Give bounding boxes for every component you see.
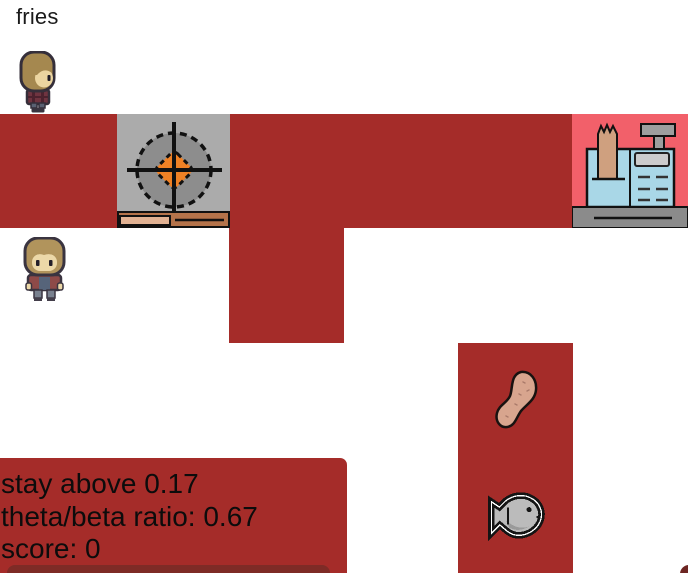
fish-ingredient[interactable] xyxy=(485,488,548,546)
chef-character-icon xyxy=(22,237,67,302)
bottom-right-peek-shape xyxy=(680,565,688,573)
stove-station[interactable] xyxy=(117,114,230,228)
register-station[interactable] xyxy=(572,114,688,228)
potato-icon xyxy=(492,369,542,433)
score-readout: score: 0 xyxy=(1,533,347,566)
counter-block-mid xyxy=(229,228,344,343)
theta-beta-ratio-readout: theta/beta ratio: 0.67 xyxy=(1,501,347,534)
cash-register-icon xyxy=(572,114,688,228)
threshold-instruction: stay above 0.17 xyxy=(1,468,347,501)
order-label: fries xyxy=(16,4,59,30)
status-panel: stay above 0.17 theta/beta ratio: 0.67 s… xyxy=(0,458,347,573)
chef-character-icon xyxy=(19,51,57,113)
game-viewport: fries xyxy=(0,0,688,573)
stove-burner-icon xyxy=(117,114,230,228)
player-character-mid[interactable] xyxy=(22,237,67,302)
fish-icon xyxy=(485,488,548,546)
player-character-top[interactable] xyxy=(19,51,57,113)
potato-ingredient[interactable] xyxy=(492,369,542,433)
hud-sub-panel-edge xyxy=(7,565,330,573)
